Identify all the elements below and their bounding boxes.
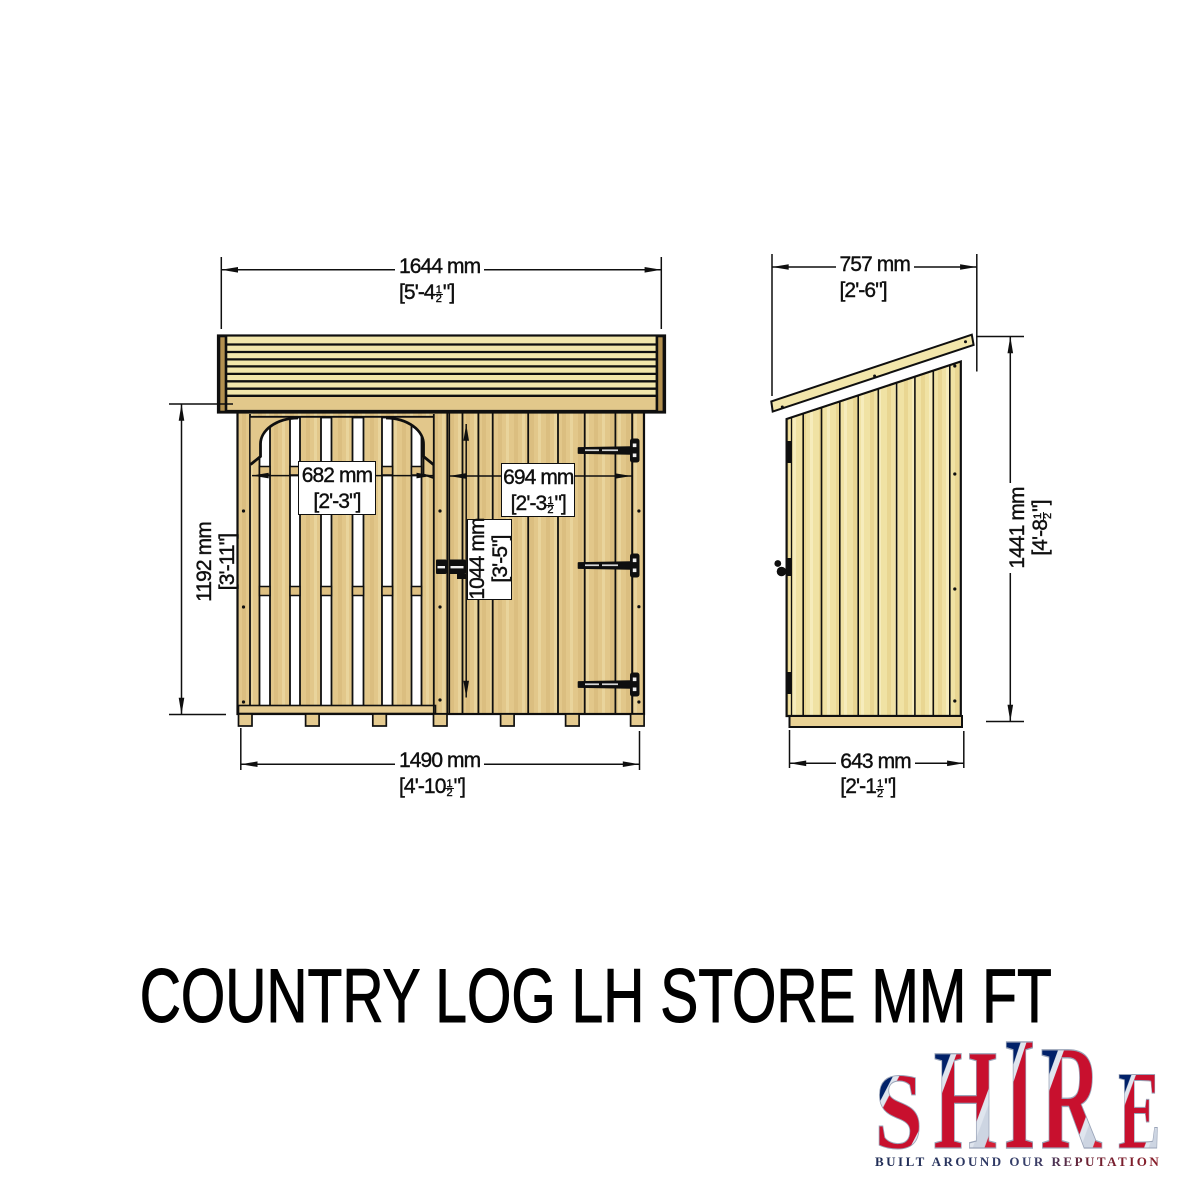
- svg-text:BUILT AROUND OUR REPUTATION: BUILT AROUND OUR REPUTATION: [875, 1154, 1161, 1169]
